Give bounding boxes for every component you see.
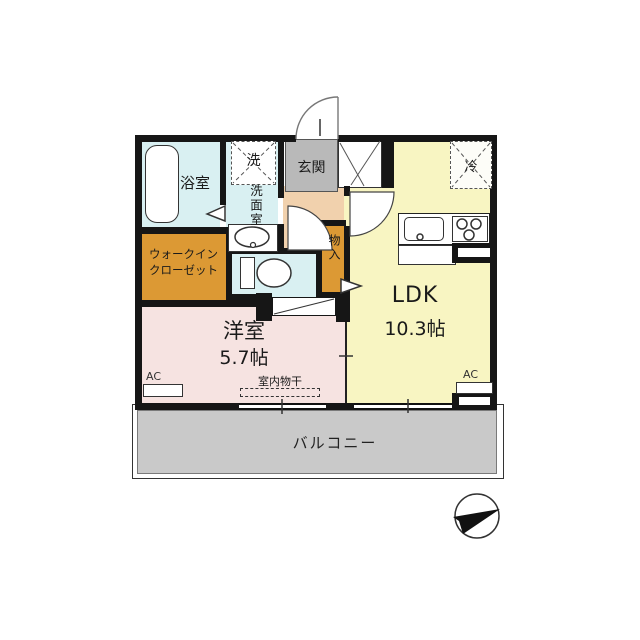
bathroom-door-arrow (207, 206, 225, 221)
hallway-ldk-door-arc (350, 192, 394, 236)
floor-plan: 浴室 洗 洗面室 玄関 ウォークイン クローゼット 物入 洋室 5.7帖 室内物… (0, 0, 640, 640)
wic-label-line1: ウォークイン (141, 246, 226, 262)
washbasin-bowl (235, 227, 269, 248)
ldk-label: LDK (360, 283, 470, 308)
washroom-label: 洗面室 (246, 184, 265, 228)
bathroom-label: 浴室 (180, 172, 210, 193)
ac-right-label: AC (463, 368, 478, 381)
storage-label: 物入 (326, 234, 343, 262)
stove-burners (417, 219, 481, 240)
ldk-size-label: 10.3帖 (360, 314, 470, 341)
toilet-bowl (257, 259, 291, 287)
indoor-drying-label: 室内物干 (240, 373, 320, 389)
wic-label-line2: クローゼット (141, 262, 226, 278)
western-room-label: 洋室 (159, 315, 329, 345)
entrance-door-arc (296, 97, 338, 139)
shoe-cabinet-door-lines (340, 141, 380, 186)
storage-door-arrow (341, 279, 361, 293)
western-door-diagonal (274, 299, 334, 314)
north-arrow-icon (453, 494, 500, 538)
entrance-label: 玄関 (285, 157, 338, 177)
ac-left-label: AC (146, 370, 161, 383)
fridge-label: 冷 (450, 156, 492, 175)
washer-label: 洗 (231, 150, 276, 170)
western-room-size: 5.7帖 (159, 343, 329, 370)
balcony-label: バルコニー (250, 432, 420, 453)
